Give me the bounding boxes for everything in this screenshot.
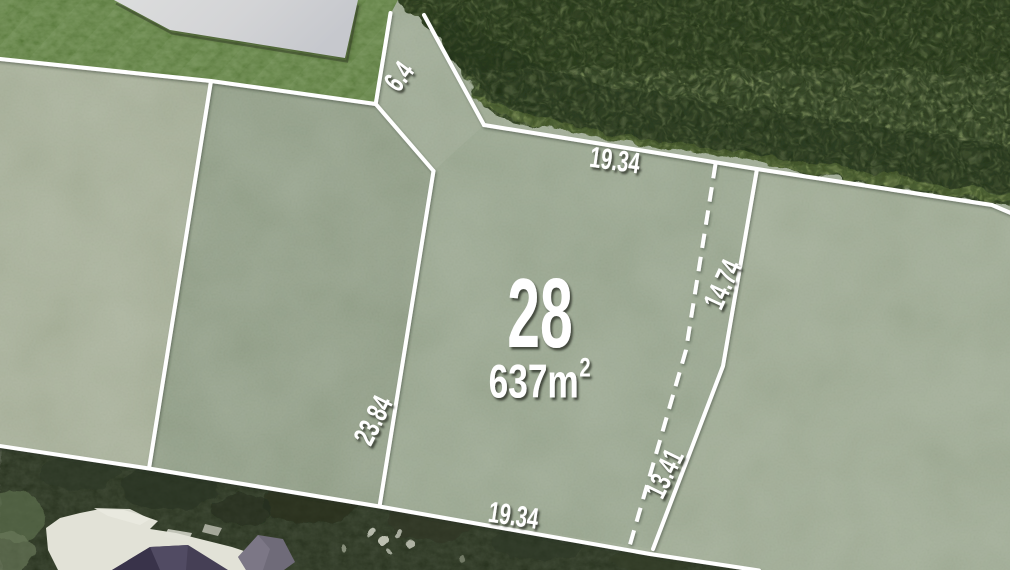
- svg-text:28: 28: [507, 260, 572, 369]
- svg-text:19.34: 19.34: [588, 141, 642, 180]
- svg-text:637m: 637m: [489, 355, 579, 408]
- svg-text:2: 2: [579, 353, 590, 384]
